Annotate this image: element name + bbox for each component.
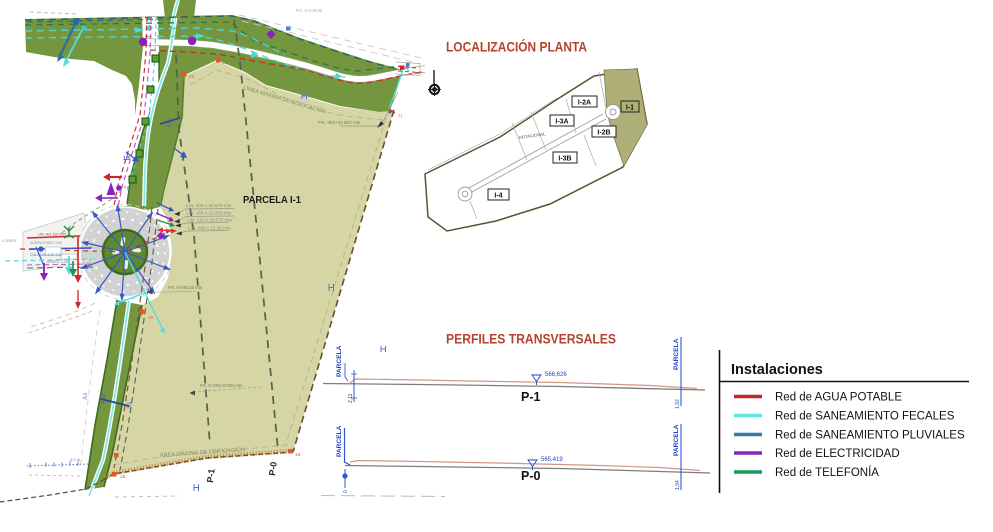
svg-text:Red de ELECTRICIDAD: Red de ELECTRICIDAD: [775, 448, 900, 460]
svg-text:PARCELA: PARCELA: [336, 345, 343, 377]
svg-text:4,0 m: 4,0 m: [70, 457, 81, 462]
svg-text:PARCELA: PARCELA: [673, 338, 680, 370]
svg-text:P-1: P-1: [521, 390, 541, 404]
svg-text:PARCELA: PARCELA: [336, 425, 343, 457]
svg-text:P.K. 0+249,50: P.K. 0+249,50: [296, 8, 323, 13]
svg-text:Red de SANEAMIENTO FECALES: Red de SANEAMIENTO FECALES: [775, 411, 955, 423]
svg-text:ACERA EXIST. 2,00: ACERA EXIST. 2,00: [30, 241, 62, 245]
svg-text:PERFILES TRANSVERSALES: PERFILES TRANSVERSALES: [446, 332, 616, 347]
svg-text:P.K. 0+383,03 B/D mts: P.K. 0+383,03 B/D mts: [200, 383, 242, 388]
svg-text:Red de TELEFONÍA: Red de TELEFONÍA: [775, 466, 879, 479]
svg-text:P.K. 383+03 B/D mts: P.K. 383+03 B/D mts: [318, 120, 361, 125]
svg-text:I-2B: I-2B: [597, 130, 610, 137]
svg-text:LIN. AG 110 PVC: LIN. AG 110 PVC: [38, 233, 68, 237]
svg-text:1B: 1B: [120, 474, 125, 479]
svg-text:Red de AGUA POTABLE: Red de AGUA POTABLE: [775, 392, 902, 404]
svg-text:22: 22: [189, 74, 194, 79]
svg-text:3,0: 3,0: [82, 392, 89, 400]
svg-text:3,5: 3,5: [126, 401, 133, 409]
svg-text:23: 23: [222, 60, 227, 65]
svg-text:I-3A: I-3A: [555, 119, 568, 126]
svg-text:LIN. 090 A 12,35 mts: LIN. 090 A 12,35 mts: [188, 226, 231, 231]
svg-text:P-0: P-0: [267, 461, 279, 476]
svg-text:I-3B: I-3B: [558, 156, 571, 163]
svg-text:Red de SANEAMIENTO PLUVIALES: Red de SANEAMIENTO PLUVIALES: [775, 430, 965, 442]
svg-text:PARCELA: PARCELA: [673, 424, 680, 456]
svg-text:566,626: 566,626: [545, 372, 567, 378]
svg-text:565,419: 565,419: [541, 457, 563, 463]
svg-text:APARC. 2,20: APARC. 2,20: [47, 260, 68, 264]
svg-text:I-1: I-1: [626, 105, 634, 112]
svg-text:1,92: 1,92: [675, 399, 681, 409]
svg-text:P-1: P-1: [205, 468, 217, 483]
svg-text:P-0: P-0: [521, 469, 541, 483]
svg-text:Instalaciones: Instalaciones: [731, 362, 823, 378]
svg-text:C/ EXIST.: C/ EXIST.: [2, 239, 18, 243]
svg-text:CALZADA 3,50 3,50: CALZADA 3,50 3,50: [30, 253, 62, 257]
svg-text:P.K. 0+080,00 mts: P.K. 0+080,00 mts: [168, 285, 202, 290]
svg-text:PARCELA I-1: PARCELA I-1: [243, 194, 301, 206]
svg-text:2,11: 2,11: [348, 393, 354, 403]
svg-text:LIN. 160 A 12,330 mts: LIN. 160 A 12,330 mts: [186, 211, 232, 216]
svg-text:18: 18: [148, 315, 153, 320]
svg-text:I-4: I-4: [494, 193, 502, 200]
svg-text:I-2A: I-2A: [578, 100, 591, 107]
svg-text:LIN. 110 A 28,570 mts: LIN. 110 A 28,570 mts: [187, 218, 233, 223]
svg-text:21: 21: [398, 113, 403, 118]
svg-text:1B: 1B: [295, 452, 300, 457]
svg-text:LOCALIZACIÓN PLANTA: LOCALIZACIÓN PLANTA: [446, 38, 587, 55]
svg-text:1B: 1B: [123, 156, 130, 162]
svg-text:0: 0: [343, 490, 349, 493]
svg-text:1,94: 1,94: [675, 480, 681, 490]
svg-text:LIN. 200 A 28,575 mts: LIN. 200 A 28,575 mts: [186, 203, 232, 208]
